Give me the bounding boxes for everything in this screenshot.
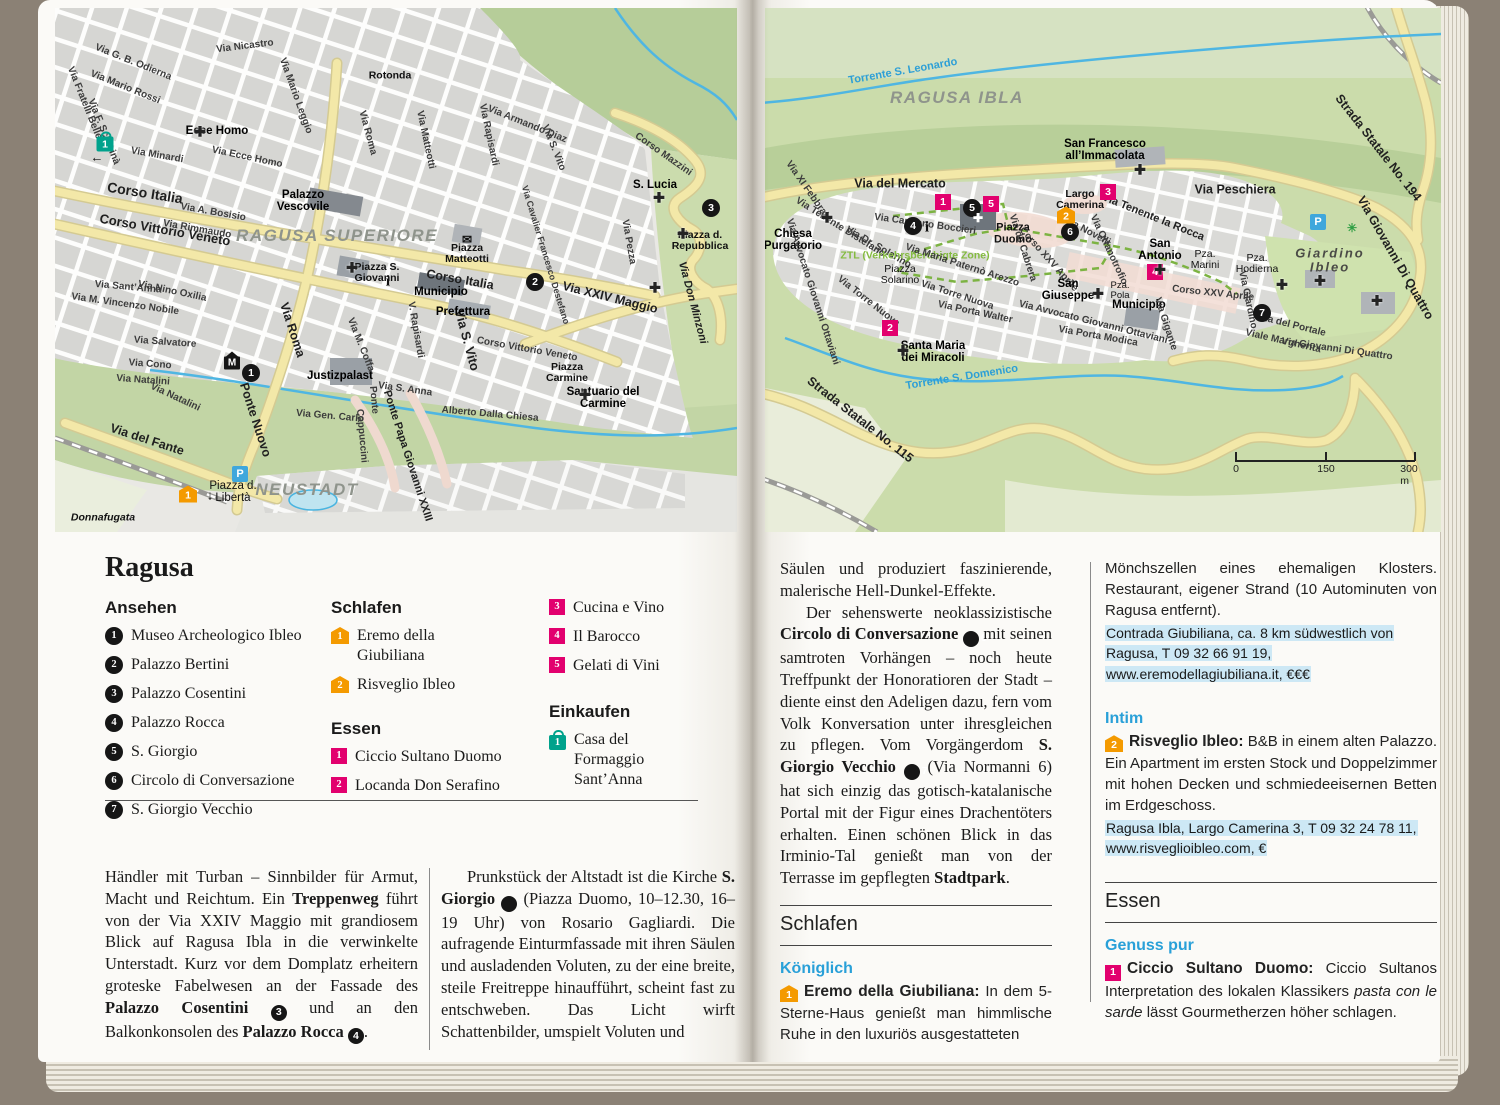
text-run: Der sehenswerte neoklassizistische: [806, 603, 1052, 622]
sight-marker: 5: [105, 743, 123, 761]
legend-item: 4Il Barocco: [549, 627, 714, 647]
place-label: Pza. Marini: [1186, 249, 1224, 271]
map-scale-bar: 0 150 300 m: [1227, 452, 1423, 478]
paragraph: Prunkstück der Altstadt ist die Kirche S…: [441, 866, 735, 1042]
subheading-genuss-pur: Genuss pur: [1105, 937, 1437, 955]
sight-marker: 4: [105, 714, 123, 732]
entry-name: Eremo della Giubiliana:: [804, 983, 980, 1000]
region-label: RAGUSA IBLA: [890, 89, 1024, 107]
legend-item: 1Casa del Formaggio Sant’Anna: [549, 730, 699, 790]
restaurant-marker: 2: [331, 777, 347, 793]
scale-label: 300 m: [1400, 463, 1418, 487]
parking-icon: P: [1310, 214, 1326, 230]
scale-tick: [1325, 452, 1327, 461]
place-label: San Antonio: [1133, 238, 1188, 262]
scale-tick: [1414, 452, 1416, 461]
church-icon: ✚: [346, 260, 358, 277]
church-icon: ✚: [897, 343, 909, 360]
legend-item: 2Locanda Don Serafino: [331, 776, 541, 796]
sight-ref-badge: 4: [348, 1028, 364, 1044]
street-label: Ponte: [367, 386, 380, 415]
restaurant-entry: 1Ciccio Sultano Duomo: Ciccio Sultanos I…: [1105, 958, 1437, 1022]
place-label: Piazza d. Repubblica: [664, 230, 736, 252]
subheading-koeniglich: Königlich: [780, 960, 1052, 978]
legend-item: 2Palazzo Bertini: [105, 655, 330, 675]
place-label: Pza. Pola: [1104, 281, 1136, 301]
page-stack-right: [1437, 6, 1469, 1076]
paragraph: Der sehenswerte neoklassizistische Circo…: [780, 602, 1052, 889]
section-header-schlafen: Schlafen: [780, 905, 1052, 946]
legend-heading: Essen: [331, 719, 541, 739]
book-spine: [735, 0, 769, 1062]
contact-highlight: Contrada Giubiliana, ca. 8 km südwestlic…: [1105, 625, 1394, 682]
restaurant-marker: 3: [1100, 184, 1116, 200]
place-label: Prefettura: [436, 306, 490, 318]
place-label: Piazza Carmine: [540, 362, 595, 384]
column-divider: [429, 868, 430, 1050]
restaurant-marker: 3: [549, 599, 565, 615]
legend-label: S. Giorgio Vecchio: [131, 800, 253, 820]
church-icon: ✚: [1276, 277, 1288, 294]
legend-label: Palazzo Rocca: [131, 713, 225, 733]
church-icon: ✚: [821, 210, 833, 227]
paragraph: Säulen und produziert faszinierende, mal…: [780, 558, 1052, 602]
sight-marker: 6: [1061, 223, 1079, 241]
church-icon: ✚: [649, 280, 661, 297]
restaurant-marker: 1: [331, 748, 347, 764]
map-ragusa-superiore: Via Nicastro Via G. B. Odierna Via Mario…: [55, 8, 737, 532]
legend-column-sights: Ansehen 1Museo Archeologico Ibleo 2Palaz…: [105, 598, 330, 829]
subheading-intim: Intim: [1105, 710, 1437, 728]
entry-text: lässt Gourmetherzen höher schlagen.: [1143, 1004, 1397, 1021]
legend-column-hotels-food: Schlafen 1Eremo della Giubiliana 2Risveg…: [331, 598, 541, 805]
sight-marker: 3: [702, 199, 720, 217]
church-icon: ✚: [1371, 293, 1383, 310]
place-label: Pza. Hodierna: [1233, 253, 1281, 275]
church-icon: ✚: [1092, 286, 1104, 303]
hotel-marker: 1: [331, 627, 349, 644]
legend-label: S. Giorgio: [131, 742, 197, 762]
legend-label: Palazzo Cosentini: [131, 684, 246, 704]
park-label: Giardino Ibleo: [1285, 246, 1375, 273]
contact-info: Ragusa Ibla, Largo Camerina 3, T 09 32 2…: [1105, 818, 1437, 859]
sight-ref-badge: 6: [963, 631, 979, 647]
entry-name: Ciccio Sultano Duomo:: [1127, 960, 1313, 977]
paragraph: Händler mit Turban – Sinnbilder für Armu…: [105, 866, 418, 1044]
legend-item: 1Ciccio Sultano Duomo: [331, 747, 541, 767]
scale-label: 150: [1317, 463, 1335, 475]
church-icon: ✚: [1154, 262, 1166, 279]
text-run: .: [1006, 868, 1010, 887]
place-label: Palazzo Vescovile: [268, 189, 338, 213]
church-icon: ✚: [1314, 273, 1326, 290]
hotel-marker: 1: [780, 985, 798, 1002]
entry-name: Risveglio Ibleo:: [1129, 733, 1244, 750]
entry-text-continued: Mönchszellen eines ehemaligen Klosters. …: [1105, 558, 1437, 621]
museum-icon: M: [224, 357, 240, 370]
street-label: Via Peschiera: [1194, 183, 1275, 196]
place-label: San Giuseppe: [1037, 278, 1099, 302]
place-label: Piazza Solarino: [875, 264, 925, 286]
text-run: (Piazza Duomo, 10–12.30, 16–19 Uhr) von …: [441, 889, 735, 1041]
legend-label: Eremo della Giubiliana: [357, 626, 461, 666]
contact-highlight: Ragusa Ibla, Largo Camerina 3, T 09 32 2…: [1105, 820, 1418, 856]
restaurant-marker: 1: [935, 194, 951, 210]
place-label: Justizpalast: [307, 370, 367, 382]
legend-heading: Ansehen: [105, 598, 330, 618]
street-label: Via del Mercato: [854, 177, 945, 190]
legend-label: Museo Archeologico Ibleo: [131, 626, 302, 646]
restaurant-marker: 1: [1105, 965, 1121, 981]
sight-marker: 4: [904, 217, 922, 235]
legend-label: Casa del Formaggio Sant’Anna: [574, 730, 699, 790]
legend-label: Palazzo Bertini: [131, 655, 229, 675]
sight-marker: 2: [526, 273, 544, 291]
arrow-left-icon: ←: [91, 150, 104, 165]
palm-icon: ✳: [1347, 221, 1357, 235]
legend-item: 3Cucina e Vino: [549, 598, 714, 618]
legend-item: 6Circolo di Conversazione: [105, 771, 330, 791]
right-page: Torrente S. Leonardo RAGUSA IBLA San Fra…: [750, 0, 1440, 1062]
arrow-down-icon: ↓: [207, 488, 214, 503]
station-label: Donnafugata: [71, 512, 135, 523]
sight-marker: 3: [105, 685, 123, 703]
place-label: Santuario del Carmine: [563, 386, 643, 410]
church-icon: ✚: [653, 190, 665, 207]
left-page: Via Nicastro Via G. B. Odierna Via Mario…: [38, 0, 750, 1062]
map-ragusa-ibla: Torrente S. Leonardo RAGUSA IBLA San Fra…: [765, 8, 1441, 532]
sight-ref-badge: 7: [904, 764, 920, 780]
sight-marker: 6: [105, 772, 123, 790]
legend-item: 1Eremo della Giubiliana: [331, 626, 461, 666]
sight-marker: 7: [105, 801, 123, 819]
text-run-bold: Palazzo Rocca: [243, 1022, 344, 1041]
mail-icon: ✉: [462, 233, 472, 248]
legend-label: Ciccio Sultano Duomo: [355, 747, 502, 767]
restaurant-marker: 5: [549, 657, 565, 673]
place-label: Rotonda: [369, 70, 412, 81]
hotel-marker: 2: [1105, 735, 1123, 752]
legend-heading: Schlafen: [331, 598, 541, 618]
text-run: mit seinen samtroten Vorhängen – noch he…: [780, 624, 1052, 754]
info-icon: i: [925, 220, 929, 237]
hotel-entry: 2Risveglio Ibleo: B&B in einem alten Pal…: [1105, 731, 1437, 816]
church-icon: ✚: [677, 226, 689, 243]
legend-item: 5Gelati di Vini: [549, 656, 714, 676]
sight-marker: 2: [105, 656, 123, 674]
legend-item: 4Palazzo Rocca: [105, 713, 330, 733]
article-column-2: Prunkstück der Altstadt ist die Kirche S…: [441, 866, 735, 1042]
legend-label: Gelati di Vini: [573, 656, 660, 676]
legend-label: Circolo di Conversazione: [131, 771, 295, 791]
legend-label: Risveglio Ibleo: [357, 675, 455, 695]
place-label: San Francesco all’Immacolata: [1053, 138, 1158, 162]
article-column-2: Mönchszellen eines ehemaligen Klosters. …: [1105, 558, 1437, 1023]
church-icon: ✚: [194, 124, 206, 141]
section-header-essen: Essen: [1105, 882, 1437, 923]
scale-tick: [1235, 452, 1237, 461]
place-label: Municipio: [414, 286, 468, 298]
text-run: .: [364, 1022, 368, 1041]
region-label: RAGUSA SUPERIORE: [236, 227, 438, 245]
church-icon: ✚: [1134, 162, 1146, 179]
parking-icon: P: [232, 466, 248, 482]
hotel-entry: 1Eremo della Giubiliana: In dem 5-Sterne…: [780, 981, 1052, 1045]
legend-item: 5S. Giorgio: [105, 742, 330, 762]
legend-label: Cucina e Vino: [573, 598, 664, 618]
text-run: Prunkstück der Altstadt ist die Kirche: [467, 867, 722, 886]
legend-item: 2Risveglio Ibleo: [331, 675, 541, 695]
text-run-bold: Stadtpark: [934, 868, 1006, 887]
info-icon: i: [386, 274, 390, 291]
text-run-bold: Circolo di Conversazione: [780, 624, 958, 643]
page-title: Ragusa: [105, 552, 194, 584]
divider-rule: [105, 800, 698, 801]
legend-column-food-shop: 3Cucina e Vino 4Il Barocco 5Gelati di Vi…: [549, 598, 714, 799]
restaurant-marker: 2: [882, 320, 898, 336]
column-divider: [1090, 562, 1091, 1002]
sight-marker: 1: [242, 364, 260, 382]
text-run-bold: Palazzo Cosentini: [105, 998, 248, 1017]
legend-item: 1Museo Archeologico Ibleo: [105, 626, 330, 646]
hotel-marker: 2: [331, 676, 349, 693]
contact-info: Contrada Giubiliana, ca. 8 km südwestlic…: [1105, 623, 1437, 684]
shop-marker: 1: [549, 735, 566, 750]
church-icon: ✚: [579, 387, 591, 404]
legend-item: 7S. Giorgio Vecchio: [105, 800, 330, 820]
sight-marker: 1: [105, 627, 123, 645]
scale-label: 0: [1233, 463, 1239, 475]
legend-label: Locanda Don Serafino: [355, 776, 500, 796]
district-label: NEUSTADT: [255, 481, 358, 499]
restaurant-marker: 4: [549, 628, 565, 644]
legend-label: Il Barocco: [573, 627, 640, 647]
article-column-1: Säulen und produziert faszinierende, mal…: [780, 558, 1052, 1045]
sight-ref-badge: 5: [501, 896, 517, 912]
article-column-1: Händler mit Turban – Sinnbilder für Armu…: [105, 866, 418, 1044]
text-run-bold: Treppenweg: [292, 889, 378, 908]
legend-item: 3Palazzo Cosentini: [105, 684, 330, 704]
restaurant-marker: 5: [983, 196, 999, 212]
guidebook-spread: Via Nicastro Via G. B. Odierna Via Mario…: [0, 0, 1500, 1105]
sight-marker: 7: [1253, 304, 1271, 322]
legend-heading: Einkaufen: [549, 702, 714, 722]
church-icon: ✚: [973, 211, 983, 225]
sight-ref-badge: 3: [271, 1005, 287, 1021]
